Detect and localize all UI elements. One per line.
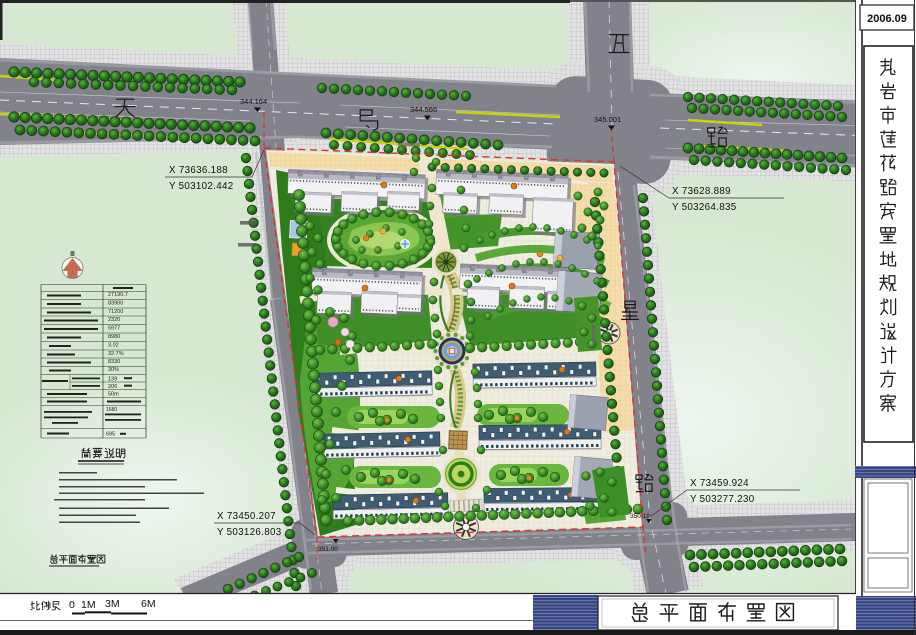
svg-text:3M: 3M: [105, 598, 120, 610]
svg-text:8980: 8980: [108, 334, 120, 340]
svg-text:344.164: 344.164: [240, 97, 267, 106]
svg-text:345.001: 345.001: [594, 115, 621, 124]
svg-text:8330: 8330: [108, 359, 120, 365]
svg-text:X 73459.924: X 73459.924: [690, 478, 749, 489]
svg-text:50m: 50m: [108, 392, 119, 398]
svg-text:83900: 83900: [108, 301, 123, 307]
svg-text:Y 503126.803: Y 503126.803: [217, 527, 282, 538]
svg-text:30%: 30%: [108, 367, 119, 373]
svg-text:Y 503102.442: Y 503102.442: [169, 181, 233, 192]
svg-text:350.19: 350.19: [630, 513, 650, 520]
svg-text:Y 503277.230: Y 503277.230: [690, 494, 755, 505]
svg-text:206: 206: [108, 384, 117, 390]
svg-text:139: 139: [108, 377, 117, 383]
svg-text:344.566: 344.566: [410, 105, 437, 114]
svg-text:5977: 5977: [108, 326, 120, 332]
svg-text:2006.09: 2006.09: [867, 13, 907, 25]
svg-text:32.7%: 32.7%: [108, 351, 124, 357]
svg-text:X 73450.207: X 73450.207: [217, 511, 276, 522]
svg-text:0: 0: [69, 599, 75, 611]
svg-text:2320: 2320: [108, 317, 120, 323]
svg-text:695: 695: [106, 432, 115, 438]
svg-text:Y 503264.835: Y 503264.835: [672, 202, 737, 213]
svg-text:3.02: 3.02: [108, 343, 119, 349]
svg-text:6M: 6M: [141, 598, 156, 610]
svg-text:351.00: 351.00: [318, 546, 338, 553]
svg-text:27190.7: 27190.7: [108, 292, 128, 298]
svg-text:71200: 71200: [108, 309, 123, 315]
svg-text:1M: 1M: [81, 599, 96, 611]
svg-text:X 73628.889: X 73628.889: [672, 186, 731, 197]
svg-text:1680: 1680: [106, 407, 117, 413]
svg-text:X 73636.188: X 73636.188: [169, 165, 228, 176]
